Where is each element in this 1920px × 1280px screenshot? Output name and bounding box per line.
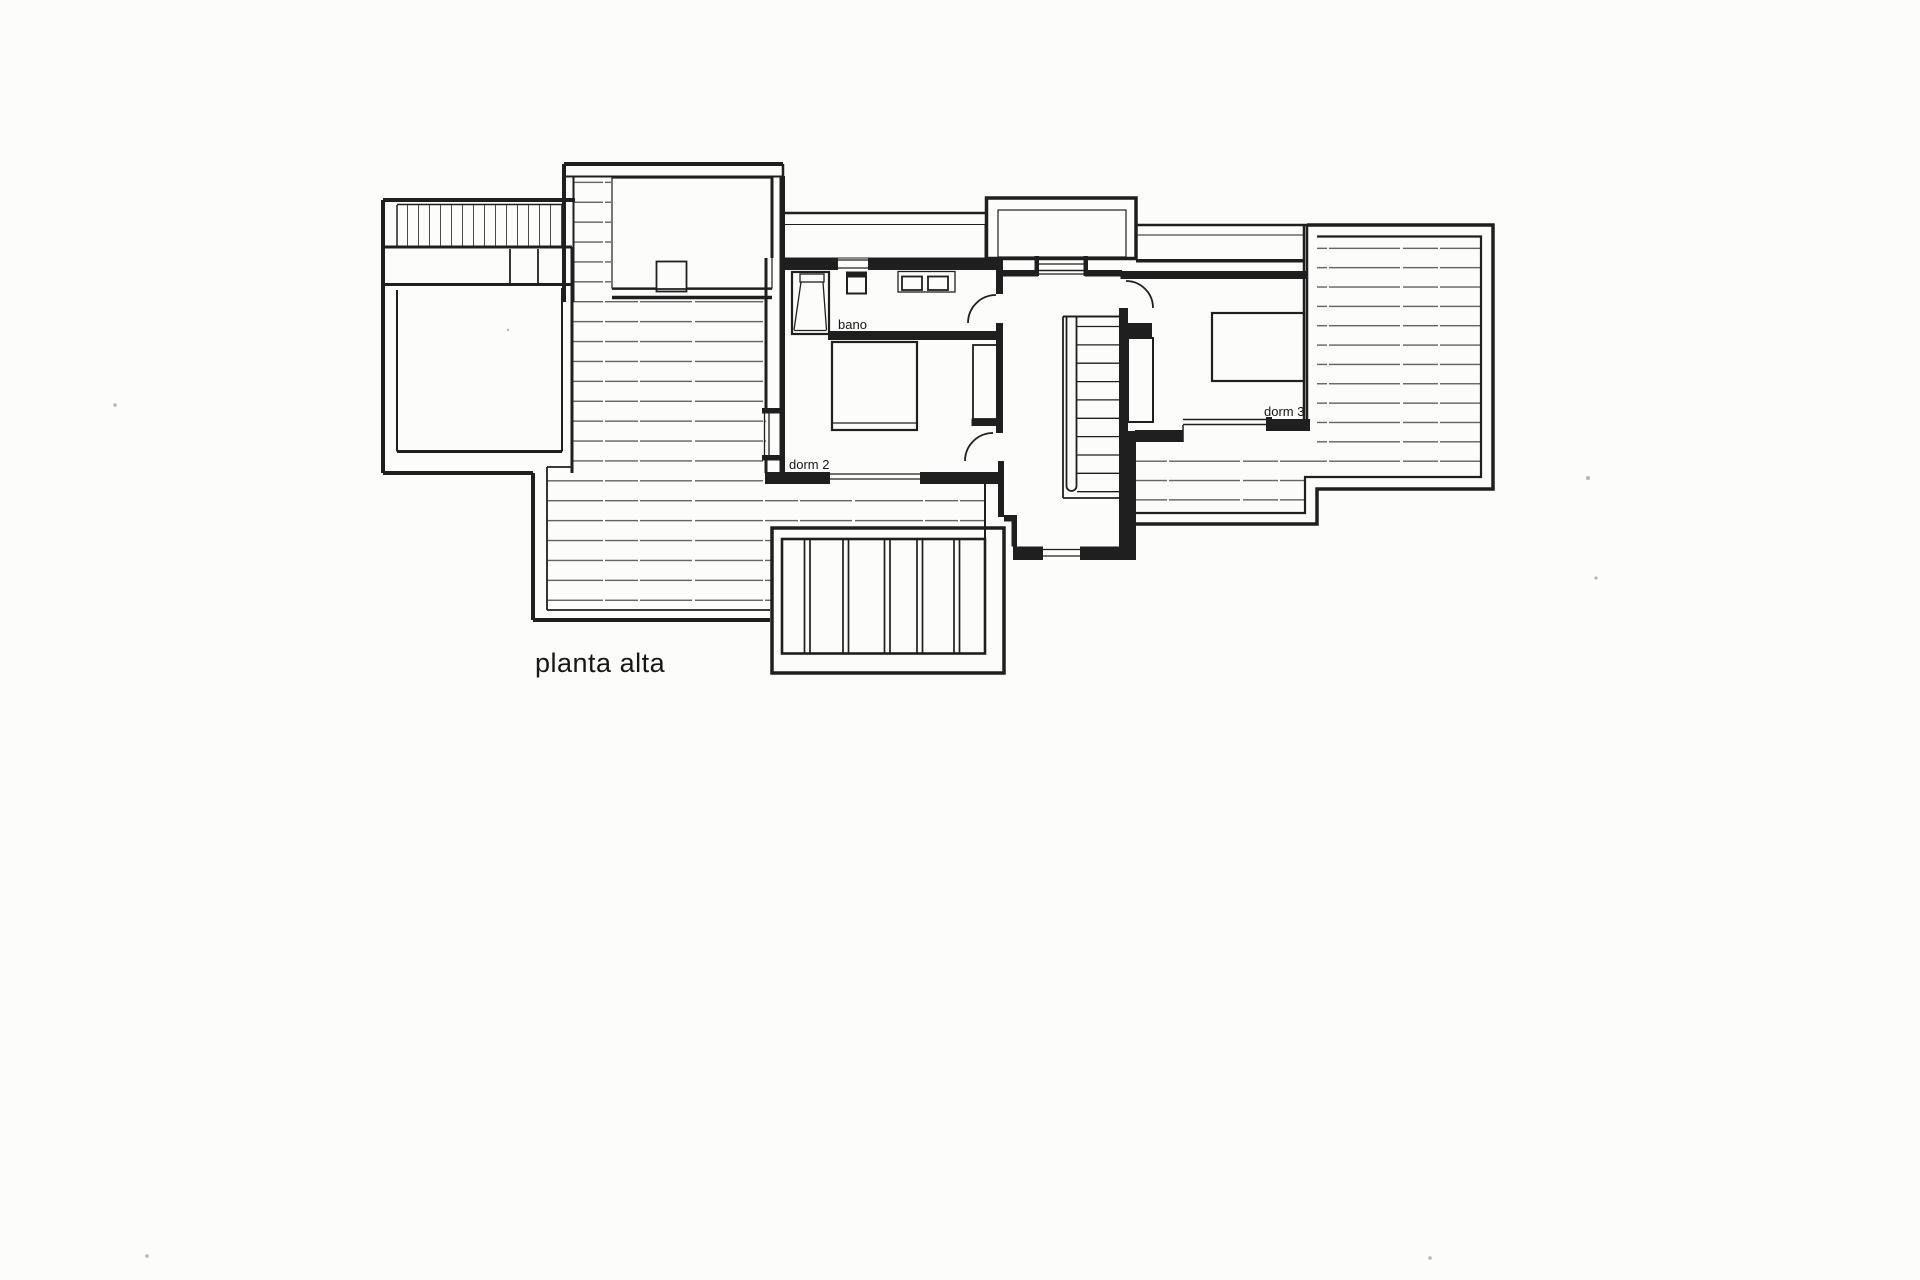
label-bano: bano: [838, 317, 867, 332]
toilet: [847, 273, 866, 294]
door-dorm2: [965, 433, 993, 461]
door-dorm3: [1126, 281, 1153, 308]
window-hall-south: [1043, 550, 1080, 557]
sink-counter: [898, 272, 955, 293]
wardrobe-dorm3: [1128, 338, 1153, 422]
window-dorm3-south: [1183, 420, 1270, 425]
window-dorm2-south: [830, 474, 920, 479]
furniture: [832, 313, 1304, 430]
bathroom-fixtures: [792, 272, 955, 335]
bed-dorm2: [832, 342, 917, 430]
floor-plan-drawing: bano dorm 2 dorm 3 planta alta: [0, 0, 1920, 1280]
pergola-louver-strip: [397, 205, 562, 248]
sink-right: [928, 277, 948, 291]
shower: [792, 272, 829, 334]
label-dorm-2: dorm 2: [789, 457, 829, 472]
drawing-caption: planta alta: [535, 648, 666, 678]
stair-handrail: [1067, 317, 1077, 492]
bed-dorm3: [1212, 313, 1304, 381]
stair-treads: [1077, 327, 1119, 492]
window-bano-north: [838, 260, 868, 268]
label-dorm-3: dorm 3: [1264, 404, 1304, 419]
roof-hatch-opening: [657, 262, 687, 292]
door-bano: [968, 295, 996, 323]
sink-left: [902, 277, 922, 291]
scanned-floor-plan-page: bano dorm 2 dorm 3 planta alta: [0, 0, 1920, 1280]
wardrobe-dorm2: [973, 345, 999, 419]
balcony-slats: [782, 539, 985, 654]
